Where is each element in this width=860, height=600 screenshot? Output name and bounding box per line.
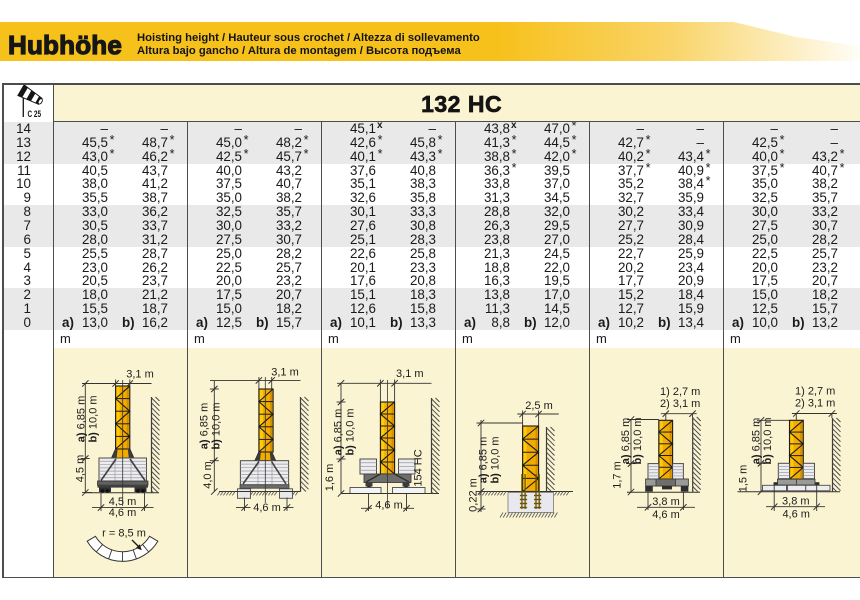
svg-text:b) 10,0 m: b) 10,0 m [632, 417, 644, 464]
svg-text:4,5 m: 4,5 m [75, 455, 87, 483]
svg-text:4,6 m: 4,6 m [253, 502, 281, 514]
svg-text:r = 8,5 m: r = 8,5 m [102, 528, 146, 540]
svg-text:b) 10,0 m: b) 10,0 m [88, 395, 100, 442]
svg-text:1,5 m: 1,5 m [738, 465, 750, 493]
svg-text:a) 6,85 m: a) 6,85 m [199, 403, 211, 449]
svg-text:3,1 m: 3,1 m [396, 368, 424, 380]
svg-text:a) 6,85 m: a) 6,85 m [478, 437, 490, 483]
svg-text:3,8 m: 3,8 m [782, 495, 810, 507]
svg-text:a) 6,85 m: a) 6,85 m [333, 409, 345, 455]
svg-text:154 HC: 154 HC [413, 449, 425, 486]
svg-text:1,6 m: 1,6 m [324, 464, 336, 492]
svg-text:2) 3,1 m: 2) 3,1 m [795, 398, 835, 410]
svg-text:4,6 m: 4,6 m [375, 500, 403, 512]
svg-text:b) 10,0 m: b) 10,0 m [490, 436, 502, 483]
svg-text:a) 6,85 m: a) 6,85 m [751, 418, 763, 464]
svg-text:4,6 m: 4,6 m [652, 509, 680, 521]
svg-text:a) 6,85 m: a) 6,85 m [620, 418, 632, 464]
svg-text:b) 10,0 m: b) 10,0 m [345, 408, 357, 455]
svg-text:4,0 m: 4,0 m [202, 461, 214, 489]
svg-text:3,8 m: 3,8 m [652, 496, 680, 508]
svg-text:0,22 m: 0,22 m [468, 478, 480, 512]
svg-text:3,1 m: 3,1 m [126, 369, 154, 381]
svg-text:4,6 m: 4,6 m [109, 507, 137, 519]
svg-text:1) 2,7 m: 1) 2,7 m [795, 386, 835, 398]
svg-text:4,6 m: 4,6 m [782, 508, 810, 520]
svg-text:b) 10,0 m: b) 10,0 m [211, 402, 223, 449]
svg-text:3,1 m: 3,1 m [271, 367, 299, 379]
svg-text:1,7 m: 1,7 m [612, 461, 624, 489]
svg-text:b) 10,0 m: b) 10,0 m [762, 417, 774, 464]
svg-text:2) 3,1 m: 2) 3,1 m [660, 398, 700, 410]
svg-text:2,5 m: 2,5 m [525, 400, 553, 412]
svg-text:a) 6,85 m: a) 6,85 m [76, 396, 88, 442]
svg-text:1) 2,7 m: 1) 2,7 m [660, 386, 700, 398]
svg-text:C 25: C 25 [28, 109, 42, 119]
